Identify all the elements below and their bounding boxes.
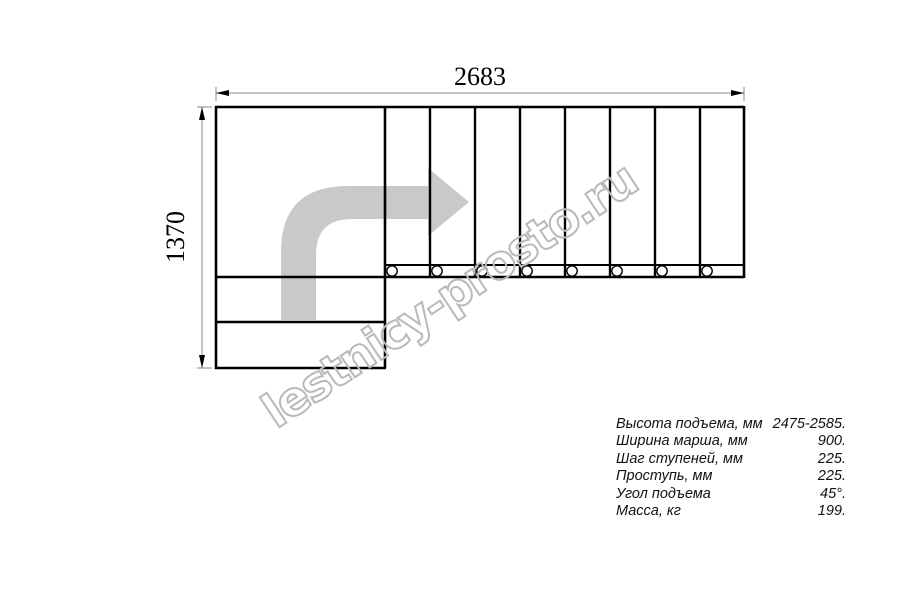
spec-row: Проступь, мм 225. — [616, 468, 846, 485]
dim-arrow-left — [216, 90, 229, 96]
spec-label: Высота подъема, мм — [616, 416, 763, 433]
spec-value: 45°. — [820, 486, 846, 503]
baluster-circle — [612, 266, 622, 276]
spec-row: Шаг ступеней, мм 225. — [616, 451, 846, 468]
dimension-width-label: 2683 — [454, 62, 506, 91]
spec-value: 2475-2585. — [773, 416, 846, 433]
baluster-circles — [387, 266, 712, 276]
spec-value: 225. — [818, 468, 846, 485]
specs-table: Высота подъема, мм 2475-2585. Ширина мар… — [616, 416, 846, 520]
dimension-height-label: 1370 — [161, 211, 190, 263]
spec-row: Масса, кг 199. — [616, 503, 846, 520]
baluster-circle — [477, 266, 487, 276]
baluster-circle — [387, 266, 397, 276]
dimension-height: 1370 — [161, 107, 212, 368]
baluster-circle — [567, 266, 577, 276]
dim-arrow-down — [199, 355, 205, 368]
baluster-circle — [702, 266, 712, 276]
spec-row: Угол подъема 45°. — [616, 486, 846, 503]
dimension-width: 2683 — [216, 62, 744, 101]
spec-row: Высота подъема, мм 2475-2585. — [616, 416, 846, 433]
spec-label: Угол подъема — [616, 486, 711, 503]
direction-arrow — [281, 168, 469, 320]
spec-label: Ширина марша, мм — [616, 433, 748, 450]
spec-value: 225. — [818, 451, 846, 468]
spec-label: Шаг ступеней, мм — [616, 451, 743, 468]
baluster-circle — [657, 266, 667, 276]
baluster-circle — [522, 266, 532, 276]
spec-value: 900. — [818, 433, 846, 450]
spec-value: 199. — [818, 503, 846, 520]
tread-lines — [430, 107, 700, 277]
spec-label: Проступь, мм — [616, 468, 712, 485]
spec-row: Ширина марша, мм 900. — [616, 433, 846, 450]
dim-arrow-up — [199, 107, 205, 120]
stair-drawing-page: 2683 1370 lestnicy-prosto.ru Высота подъ… — [0, 0, 900, 600]
dim-arrow-right — [731, 90, 744, 96]
spec-label: Масса, кг — [616, 503, 681, 520]
baluster-circle — [432, 266, 442, 276]
